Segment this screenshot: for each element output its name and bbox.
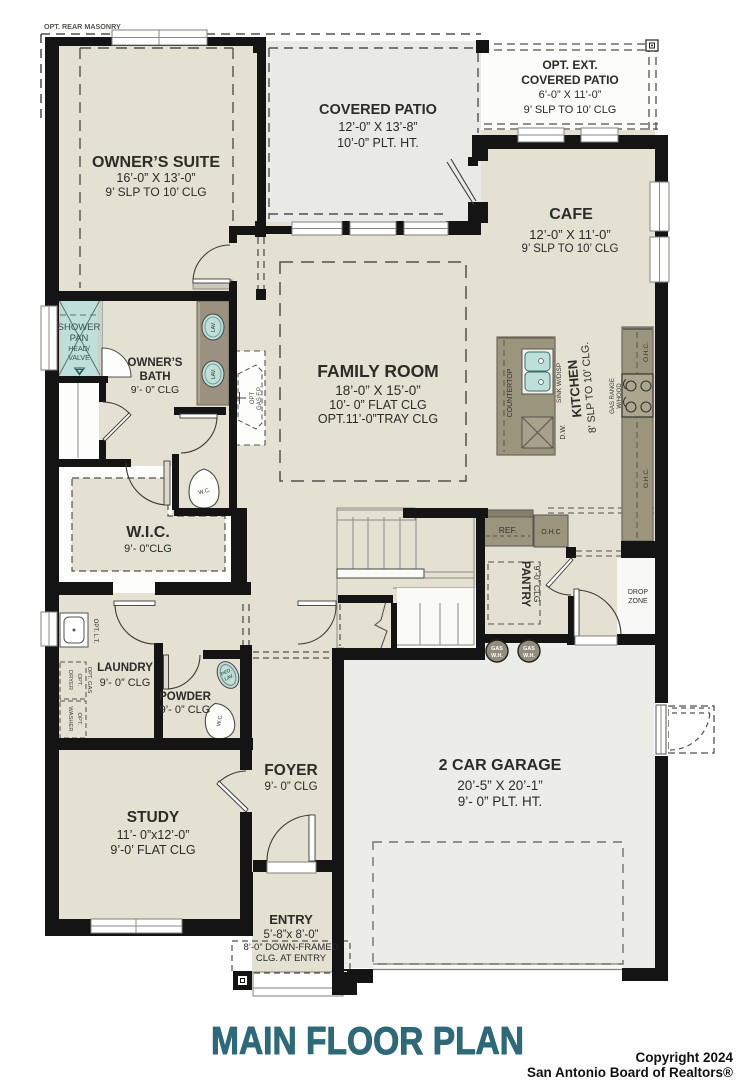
svg-text:OPT. EXT.: OPT. EXT. (542, 58, 597, 72)
svg-text:SHOWER: SHOWER (58, 322, 101, 333)
svg-text:GAS: GAS (491, 646, 503, 652)
svg-text:GAS RANGE: GAS RANGE (610, 378, 616, 414)
svg-text:OPT.: OPT. (76, 713, 82, 726)
svg-text:LAUNDRY: LAUNDRY (97, 662, 153, 674)
svg-text:GAS: GAS (523, 646, 535, 652)
svg-text:6’-0” X 11’-0”: 6’-0” X 11’-0” (539, 89, 602, 101)
svg-text:12’-0” X 13’-8”: 12’-0” X 13’-8” (338, 120, 417, 134)
svg-text:CAFE: CAFE (549, 206, 593, 223)
svg-text:16’-0” X 13’-0”: 16’-0” X 13’-0” (116, 171, 195, 185)
svg-text:12’-0” X 11’-0”: 12’-0” X 11’-0” (529, 227, 610, 242)
svg-text:San Antonio Board of Realtors®: San Antonio Board of Realtors® (527, 1065, 733, 1080)
svg-text:18’-0” X 15’-0”: 18’-0” X 15’-0” (335, 383, 421, 398)
svg-text:W.H.: W.H. (523, 653, 535, 659)
svg-text:9’ SLP TO 10’ CLG: 9’ SLP TO 10’ CLG (524, 104, 617, 116)
svg-text:D.W.: D.W. (560, 424, 567, 439)
svg-text:DROP: DROP (628, 589, 649, 596)
svg-text:W.I.C.: W.I.C. (126, 524, 170, 541)
svg-text:PANTRY: PANTRY (519, 561, 531, 607)
svg-text:ENTRY: ENTRY (269, 912, 313, 927)
svg-text:VALVE: VALVE (68, 355, 90, 362)
svg-text:GAS F.P.: GAS F.P. (257, 386, 263, 410)
svg-text:OPT. GAS: OPT. GAS (86, 667, 92, 694)
svg-text:8’-0” DOWN-FRAMED: 8’-0” DOWN-FRAMED (244, 942, 339, 953)
svg-text:OPT. L.T.: OPT. L.T. (92, 619, 98, 644)
svg-text:9’ SLP TO 10’ CLG: 9’ SLP TO 10’ CLG (522, 243, 619, 255)
svg-text:W.H.: W.H. (491, 653, 503, 659)
svg-text:FAMILY ROOM: FAMILY ROOM (317, 361, 439, 381)
svg-text:PAN: PAN (70, 333, 89, 344)
svg-text:ZONE: ZONE (628, 598, 648, 605)
svg-text:DRYER: DRYER (67, 670, 73, 690)
svg-text:OPT: OPT (250, 392, 256, 405)
svg-text:O.H.C: O.H.C (541, 529, 560, 536)
svg-text:11’- 0”x12’-0”: 11’- 0”x12’-0” (117, 828, 190, 842)
svg-text:9’- 0”CLG: 9’- 0”CLG (124, 543, 172, 555)
svg-text:9’- 0” CLG: 9’- 0” CLG (100, 677, 151, 689)
svg-text:9’- 0” CLG: 9’- 0” CLG (264, 781, 317, 793)
svg-text:W/HOOD: W/HOOD (617, 383, 623, 409)
svg-text:OPT.: OPT. (76, 674, 82, 687)
svg-text:5’-8”x 8’-0”: 5’-8”x 8’-0” (264, 929, 319, 941)
svg-text:OWNER’S SUITE: OWNER’S SUITE (92, 154, 220, 171)
svg-text:REF.: REF. (499, 525, 517, 535)
svg-text:LAV.: LAV. (211, 369, 217, 379)
svg-text:FOYER: FOYER (264, 762, 317, 779)
svg-text:OPT.11’-0”TRAY CLG: OPT.11’-0”TRAY CLG (318, 412, 438, 426)
svg-text:20’-5” X 20’-1”: 20’-5” X 20’-1” (457, 778, 543, 793)
svg-text:Copyright 2024: Copyright 2024 (635, 1050, 733, 1065)
svg-text:LAV.: LAV. (211, 322, 217, 332)
svg-text:STUDY: STUDY (127, 809, 180, 826)
svg-text:MAIN FLOOR PLAN: MAIN FLOOR PLAN (211, 1020, 524, 1063)
svg-text:SINK W/DISP: SINK W/DISP (556, 363, 563, 403)
svg-text:9’- 0” PLT. HT.: 9’- 0” PLT. HT. (458, 794, 543, 809)
svg-text:CLG. AT ENTRY: CLG. AT ENTRY (256, 953, 327, 964)
svg-text:O.H.C.: O.H.C. (643, 342, 650, 362)
svg-text:9’ SLP TO 10’ CLG: 9’ SLP TO 10’ CLG (105, 185, 206, 199)
svg-text:COVERED PATIO: COVERED PATIO (319, 102, 437, 118)
svg-text:WASHER: WASHER (67, 706, 73, 731)
svg-text:9’- 0” CLG: 9’- 0” CLG (131, 384, 179, 396)
svg-text:BATH: BATH (139, 371, 170, 383)
svg-text:POWDER: POWDER (159, 691, 211, 703)
svg-text:COUNTERTOP: COUNTERTOP (507, 368, 514, 417)
svg-text:9’-0” CLG: 9’-0” CLG (532, 566, 542, 603)
svg-text:2 CAR GARAGE: 2 CAR GARAGE (439, 757, 562, 774)
svg-text:10’-0” PLT. HT.: 10’-0” PLT. HT. (337, 136, 419, 150)
svg-text:10’- 0” FLAT CLG: 10’- 0” FLAT CLG (329, 398, 427, 412)
svg-text:OWNER’S: OWNER’S (128, 357, 183, 369)
svg-text:HEAD/: HEAD/ (68, 346, 89, 353)
svg-text:9’- 0” CLG: 9’- 0” CLG (160, 704, 211, 716)
svg-text:OPT. REAR MASONRY: OPT. REAR MASONRY (44, 22, 121, 31)
svg-text:COVERED PATIO: COVERED PATIO (521, 73, 619, 87)
svg-text:9’-0’ FLAT CLG: 9’-0’ FLAT CLG (110, 843, 195, 857)
svg-text:O.H.C.: O.H.C. (643, 468, 650, 488)
